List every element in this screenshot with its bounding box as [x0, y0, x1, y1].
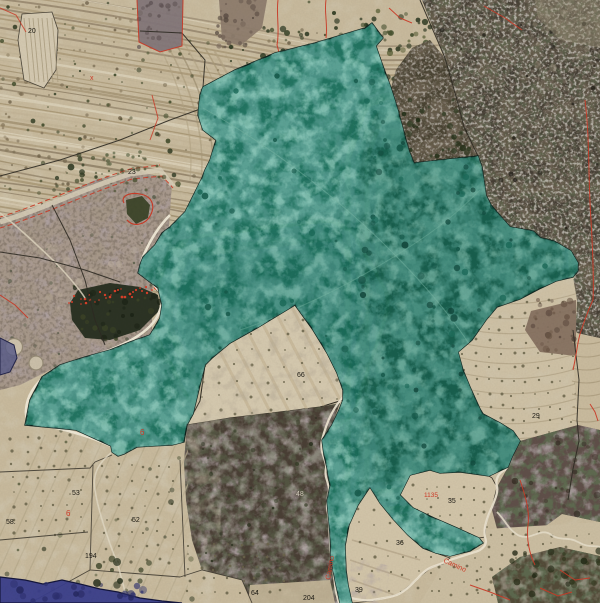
svg-text:29: 29: [532, 413, 540, 420]
svg-text:204: 204: [303, 595, 315, 602]
svg-text:1135: 1135: [424, 492, 438, 499]
svg-text:6: 6: [140, 428, 145, 437]
svg-text:23: 23: [128, 169, 136, 176]
svg-text:x: x: [90, 75, 94, 82]
svg-text:20: 20: [28, 28, 36, 35]
svg-text:6: 6: [66, 509, 71, 518]
svg-text:64: 64: [251, 590, 259, 597]
svg-text:58.: 58.: [6, 519, 16, 526]
svg-text:39: 39: [355, 587, 363, 594]
svg-text:194: 194: [85, 553, 97, 560]
svg-text:48: 48: [296, 491, 304, 498]
svg-text:52: 52: [132, 517, 140, 524]
svg-text:53: 53: [72, 490, 80, 497]
svg-text:36: 36: [396, 540, 404, 547]
svg-text:35: 35: [448, 498, 456, 505]
svg-text:66: 66: [297, 372, 305, 379]
